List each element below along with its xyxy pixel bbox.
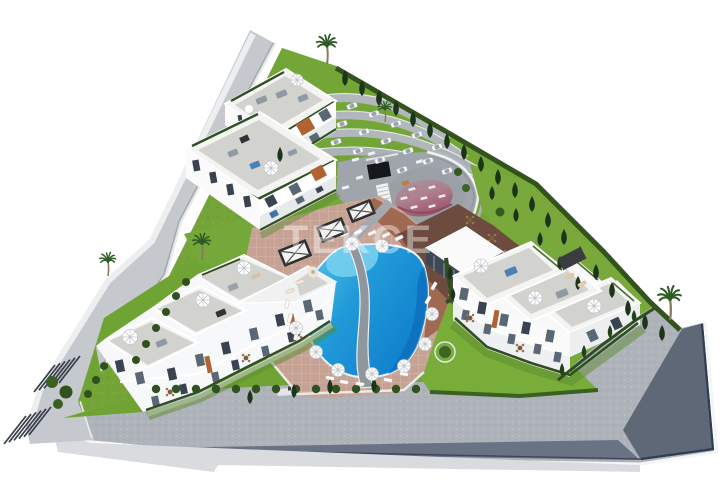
- svg-text:TEKCE: TEKCE: [284, 218, 435, 262]
